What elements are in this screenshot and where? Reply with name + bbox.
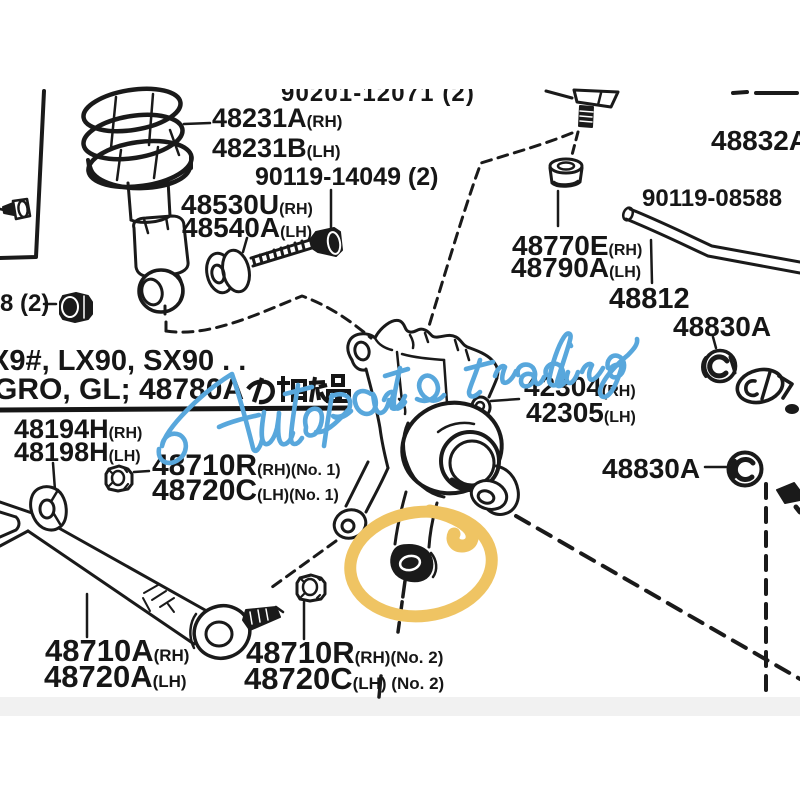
svg-text:90119-08588: 90119-08588 <box>642 185 782 212</box>
svg-text:48830A: 48830A <box>673 311 771 342</box>
svg-text:90119-14049 (2): 90119-14049 (2) <box>255 163 438 191</box>
svg-text:48832A: 48832A <box>711 125 800 156</box>
svg-text:48830A: 48830A <box>602 453 700 484</box>
svg-text:8 (2): 8 (2) <box>0 290 49 317</box>
